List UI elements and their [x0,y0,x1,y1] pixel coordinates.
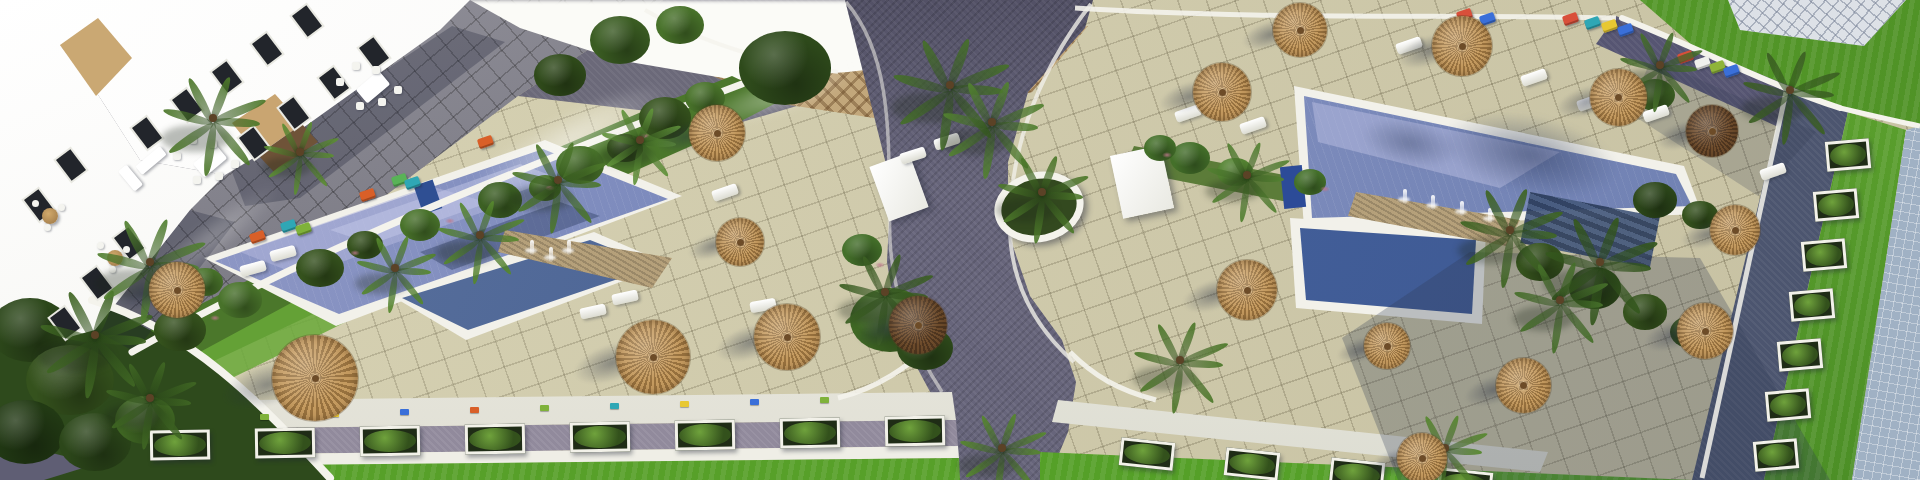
umbrella-pole-top [1702,328,1709,335]
flower-planter [540,405,549,411]
planter-shrub [784,422,836,445]
palm-trunk-top [881,288,889,296]
palm-trunk-top [636,136,644,144]
planter-shrub [364,430,416,453]
umbrella-pole-top [1732,227,1739,234]
bush [1633,182,1677,217]
bush [218,282,262,317]
umbrella-pole-top [1244,287,1251,294]
umbrella-pole-top [714,130,721,137]
umbrella-pole-top [1709,128,1716,135]
planter-shrub [1781,342,1819,367]
planter-box [1825,138,1871,172]
planter-box [885,415,946,446]
flower-tuft [1320,186,1330,192]
umbrella-pole-top [1459,43,1466,50]
planter-box [675,419,736,450]
planter-shrub [259,432,311,455]
straw-umbrella [1496,358,1551,413]
palm-trunk-top [988,118,996,126]
white-wall [1840,108,1920,126]
planter-box [1765,388,1811,422]
bush [656,6,704,44]
umbrella-pole-top [650,354,657,361]
planter-box [570,421,631,452]
flower-tuft [350,250,360,256]
straw-umbrella [616,320,690,394]
flower-tuft [875,262,885,268]
planter-box [1813,188,1859,222]
umbrella-pole-top [1384,343,1391,350]
straw-umbrella [1364,323,1410,369]
palm-trunk-top [1656,61,1664,69]
bush [1144,135,1176,161]
straw-umbrella [1217,260,1277,320]
dining-chair [231,160,239,168]
umbrella-pole-top [784,334,791,341]
palm-trunk-top [1038,188,1046,196]
palm-trunk-top [391,264,399,272]
planter-box [360,425,421,456]
straw-umbrella [272,335,358,421]
palm-trunk-top [146,394,154,402]
straw-umbrella [1193,63,1251,121]
palm-trunk-top [1243,171,1251,179]
planter-box [1119,437,1176,470]
dining-chair [378,98,386,106]
planter-shrub [1228,452,1276,477]
dining-chair [394,86,402,94]
planter-box [255,427,316,458]
planter-shrub [1123,442,1171,467]
dining-chair [356,102,364,110]
planter-shrub [574,426,626,449]
umbrella-pole-top [1419,455,1426,462]
dining-chair [173,152,181,160]
umbrella-pole-top [1219,89,1226,96]
dining-chair [352,62,360,70]
palm-trunk-top [1786,86,1794,94]
umbrella-pole-top [174,287,181,294]
planter-shrub [1793,292,1831,317]
planter-shrub [1769,392,1807,417]
bush [842,234,882,266]
bush [739,31,831,105]
rattan-chair [32,200,39,207]
straw-umbrella [1677,303,1733,359]
fountain-jet [567,240,571,255]
dining-chair [336,78,344,86]
fountain-jet [549,247,553,262]
planter-shrub [889,420,941,443]
fountain-jet [1460,201,1464,216]
bush [1170,142,1210,174]
umbrella-pole-top [1297,27,1304,34]
rattan-chair [97,242,104,249]
umbrella-pole-top [312,375,319,382]
flower-planter [400,409,409,415]
planter-box [1224,447,1281,480]
flower-planter [610,403,619,409]
straw-umbrella [1397,433,1447,480]
palm-trunk-top [209,114,217,122]
planter-box [465,423,526,454]
flower-tuft [445,218,455,224]
planter-shrub [679,424,731,447]
planter-box [780,417,841,448]
fountain-jet [1431,195,1435,210]
planter-shrub [1805,242,1843,267]
palm-trunk-top [1176,356,1184,364]
fountain-jet [1403,189,1407,204]
straw-umbrella [716,218,764,266]
planter-shrub [1817,192,1855,217]
rattan-chair [44,224,51,231]
straw-umbrella [1710,205,1760,255]
umbrella-pole-top [737,239,744,246]
planter-box [1777,338,1823,372]
dining-chair [372,66,380,74]
rattan-chair [58,204,65,211]
palm-trunk-top [554,176,562,184]
palm-trunk-top [91,331,99,339]
bush [590,16,650,64]
rattan-table [42,208,58,224]
dining-chair [193,176,201,184]
umbrella-pole-top [1615,94,1622,101]
straw-umbrella [1432,16,1492,76]
straw-umbrella [754,304,820,370]
straw-umbrella [1590,69,1647,126]
fountain-jet [530,240,534,255]
planter-shrub [1757,442,1795,467]
flower-planter [260,414,269,420]
flower-planter [820,397,829,403]
palm-trunk-top [1556,296,1564,304]
palm-trunk-top [1596,258,1604,266]
palm-trunk-top [1506,226,1514,234]
planter-shrub [1829,142,1867,167]
flower-planter [680,401,689,407]
palm-trunk-top [476,231,484,239]
umbrella-pole-top [1520,382,1527,389]
flower-tuft [210,315,220,321]
flower-planter [470,407,479,413]
dining-chair [215,172,223,180]
planter-box [1801,238,1847,272]
straw-umbrella [1273,3,1327,57]
palm-trunk-top [146,258,154,266]
bush [296,249,344,287]
straw-umbrella [889,296,947,354]
flower-planter [750,399,759,405]
palm-trunk-top [946,81,954,89]
planter-box [1789,288,1835,322]
straw-umbrella [1686,105,1738,157]
flower-tuft [1162,152,1172,158]
straw-umbrella [149,262,205,318]
straw-umbrella [689,105,745,161]
rattan-chair [123,246,130,253]
umbrella-pole-top [915,322,922,329]
planter-box [1753,438,1799,472]
bush [534,54,586,96]
palm-trunk-top [296,148,304,156]
aerial-resort-render [0,0,1920,480]
palm-trunk-top [998,444,1006,452]
white-wall [1075,8,1616,18]
planter-shrub [469,428,521,451]
